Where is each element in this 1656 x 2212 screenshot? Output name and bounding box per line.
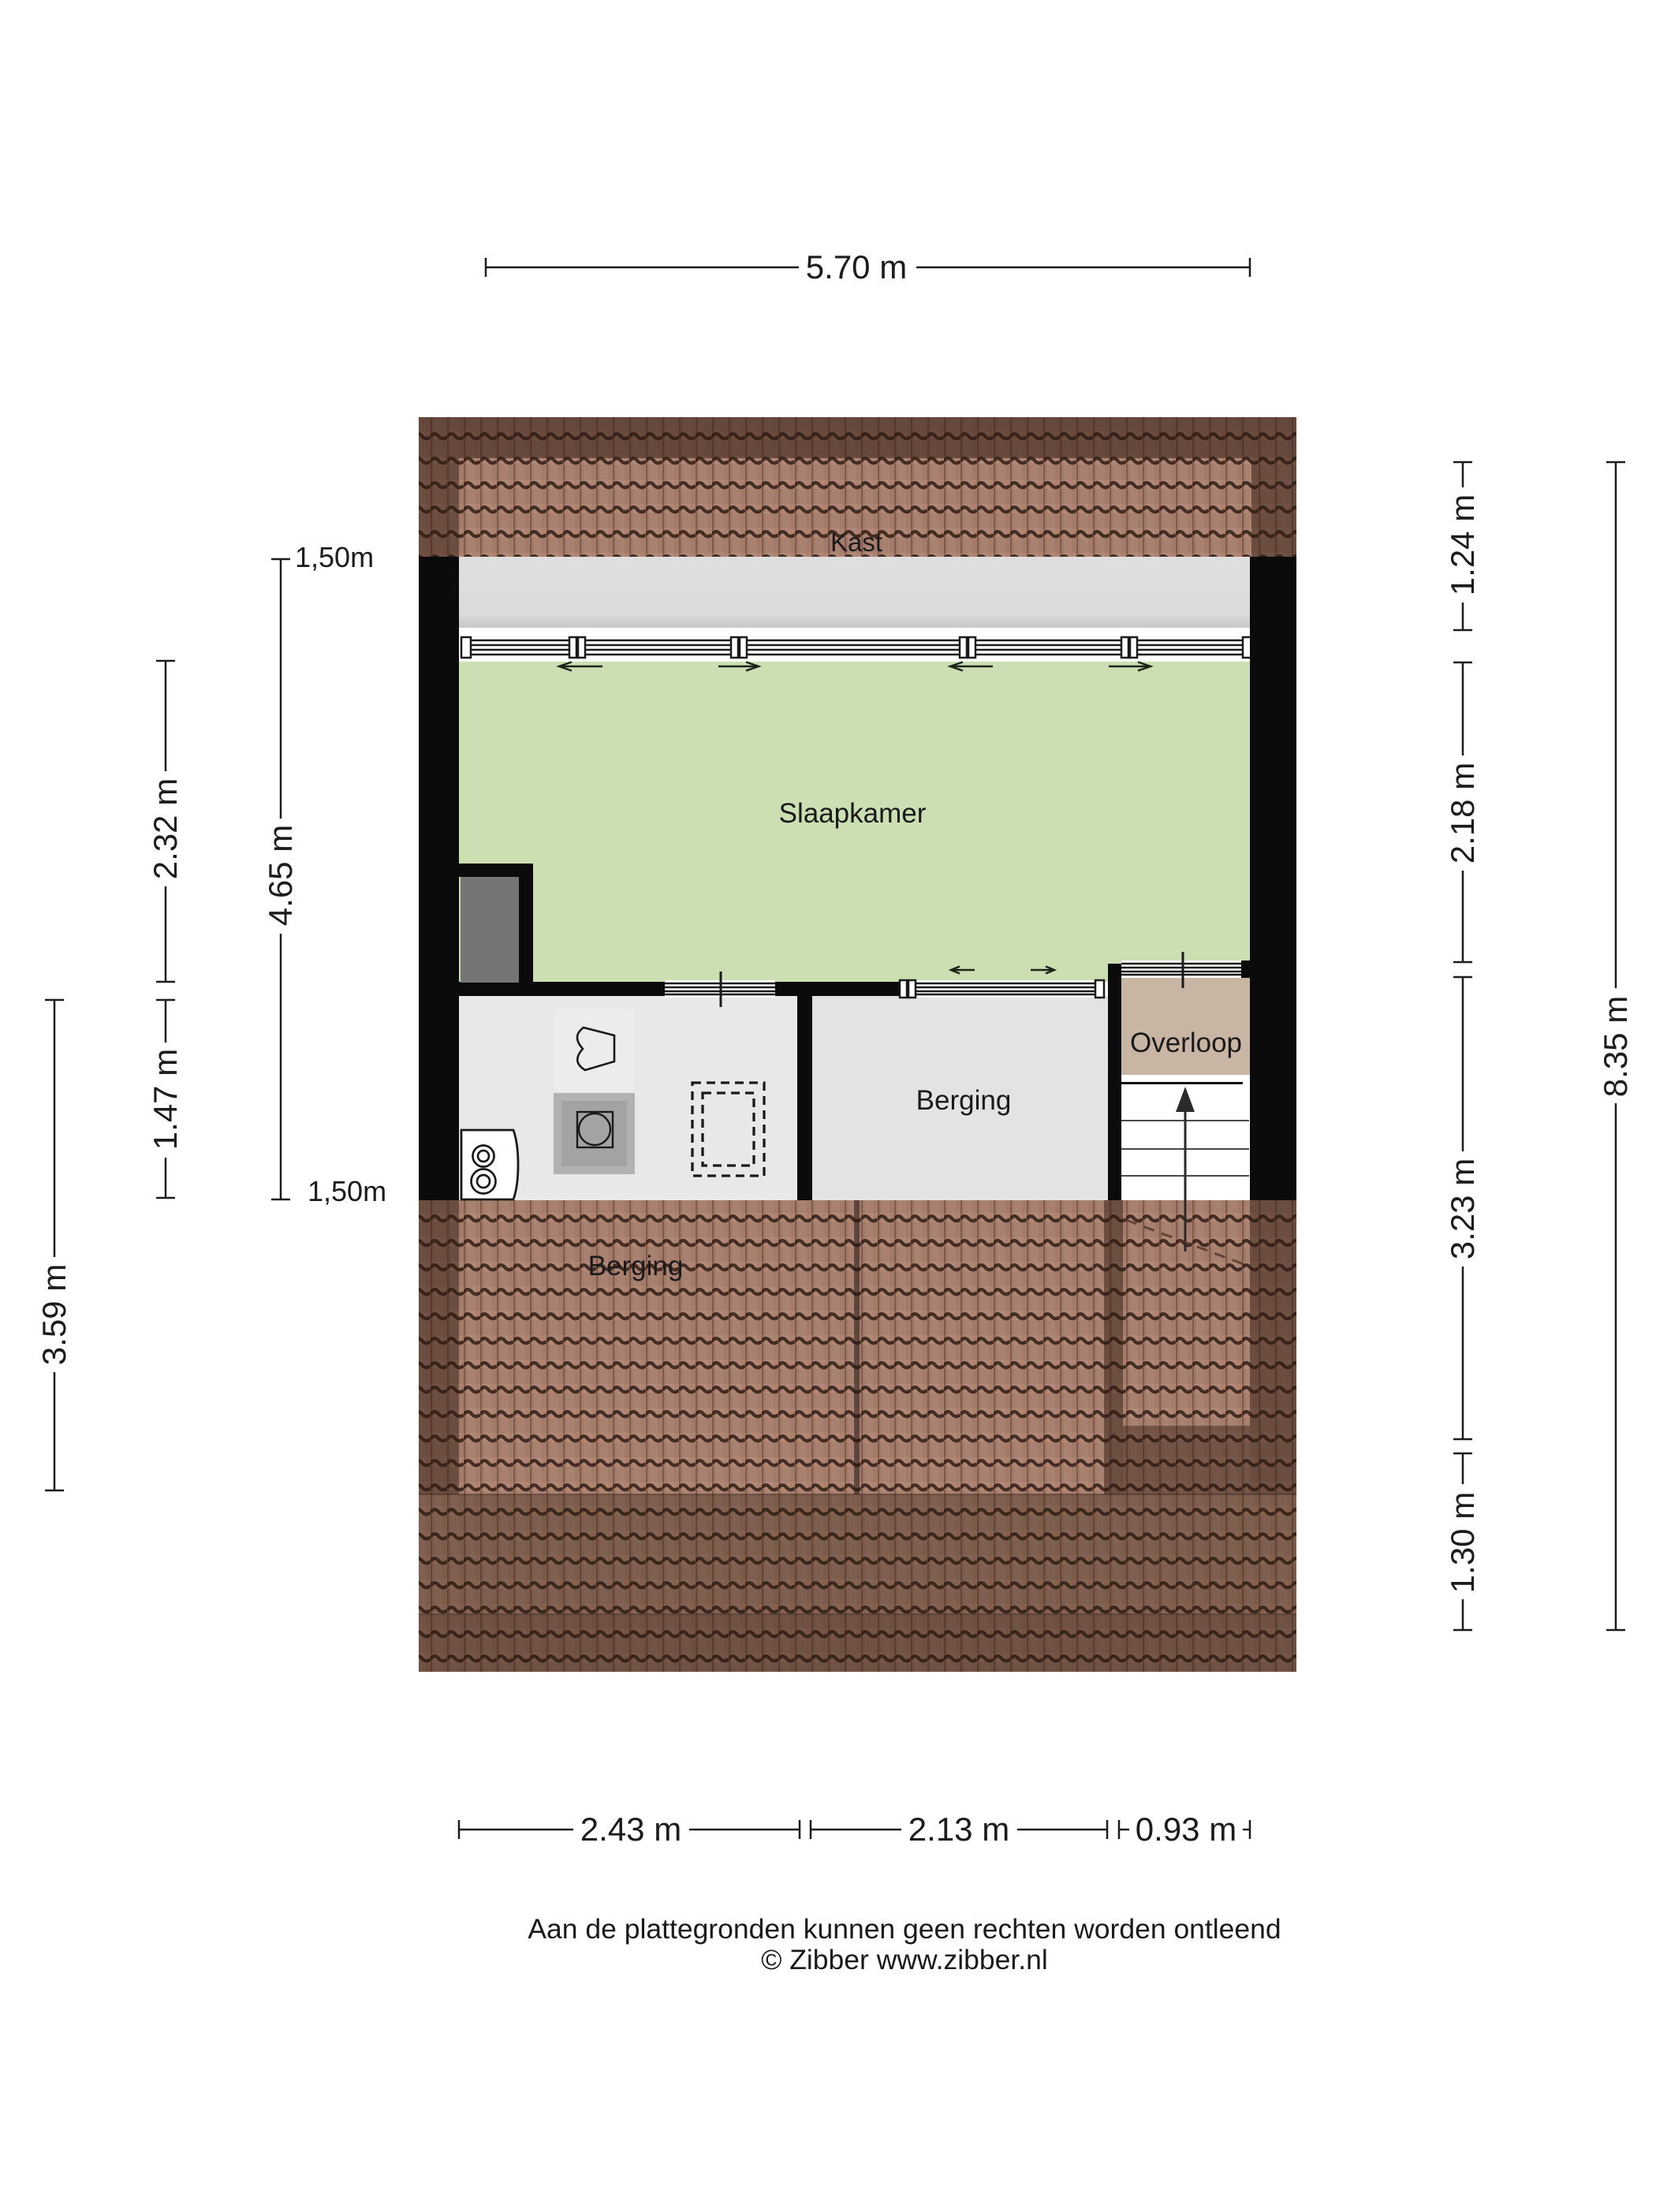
svg-text:© Zibber www.zibber.nl: © Zibber www.zibber.nl (761, 1944, 1048, 1975)
svg-text:5.70 m: 5.70 m (806, 248, 907, 285)
svg-text:Aan de plattegronden kunnen ge: Aan de plattegronden kunnen geen rechten… (528, 1913, 1281, 1945)
svg-text:1.30 m: 1.30 m (1444, 1492, 1481, 1593)
svg-text:4.65 m: 4.65 m (262, 825, 299, 926)
svg-text:1.47 m: 1.47 m (147, 1049, 184, 1150)
svg-text:Slaapkamer: Slaapkamer (779, 798, 927, 829)
svg-text:2.43 m: 2.43 m (580, 1811, 681, 1848)
svg-text:Berging: Berging (588, 1251, 684, 1281)
svg-text:2.32 m: 2.32 m (147, 778, 184, 879)
svg-text:1,50m: 1,50m (295, 541, 374, 573)
svg-text:0.93 m: 0.93 m (1136, 1811, 1236, 1848)
svg-text:Kast: Kast (830, 528, 882, 557)
svg-text:1,50m: 1,50m (308, 1175, 386, 1207)
svg-text:Overloop: Overloop (1130, 1028, 1242, 1058)
svg-text:8.35 m: 8.35 m (1597, 996, 1634, 1097)
svg-text:3.23 m: 3.23 m (1444, 1158, 1481, 1259)
svg-text:2.13 m: 2.13 m (908, 1811, 1009, 1848)
svg-text:Berging: Berging (916, 1085, 1012, 1116)
svg-text:2.18 m: 2.18 m (1444, 763, 1481, 864)
svg-text:1.24 m: 1.24 m (1444, 494, 1481, 595)
svg-text:3.59 m: 3.59 m (35, 1264, 73, 1365)
